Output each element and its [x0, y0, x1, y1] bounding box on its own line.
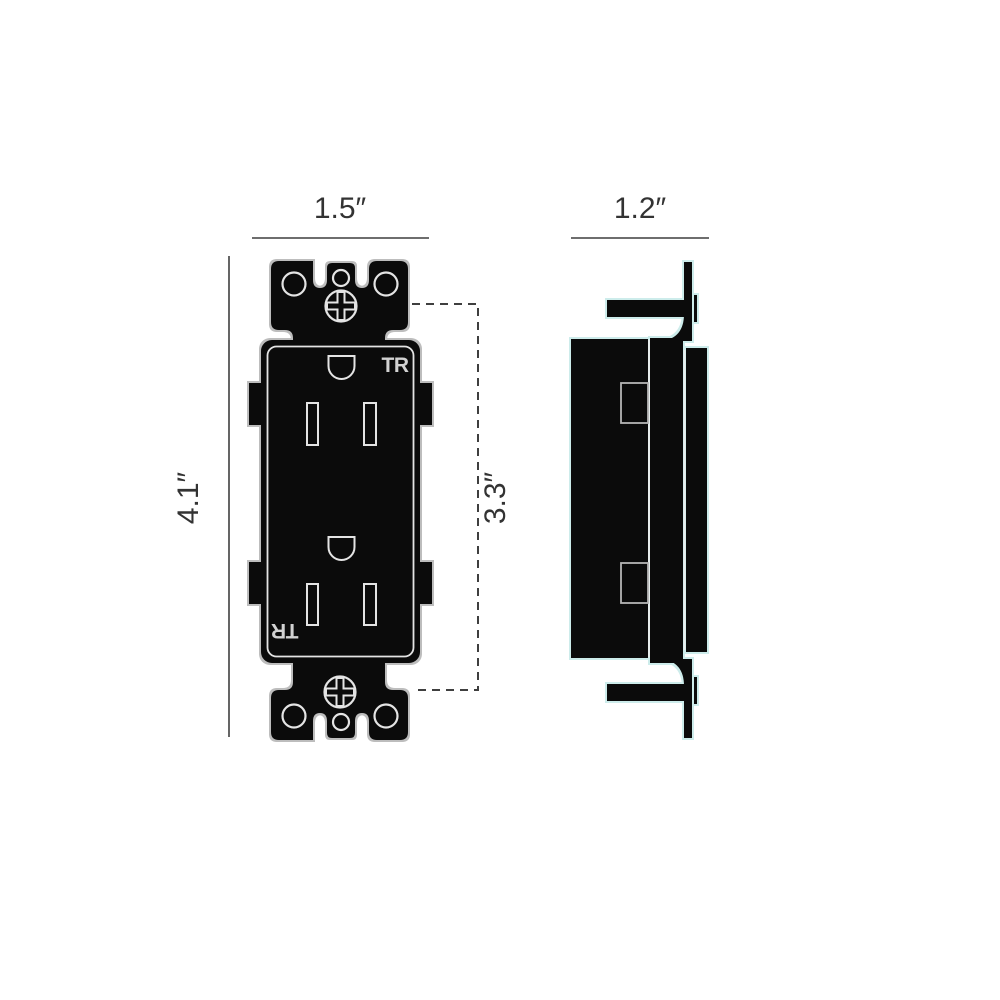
side-screw-bottom: [607, 684, 688, 701]
side-screw-tip-top: [694, 295, 697, 322]
side-tab-right-lower: [419, 562, 432, 604]
drawing-svg: 1.5″ 1.2″ 4.1″ 3.3″: [0, 0, 1000, 1000]
dimension-drawing-canvas: 1.5″ 1.2″ 4.1″ 3.3″: [0, 0, 1000, 1000]
side-view: [571, 262, 707, 738]
side-body-front-flange: [686, 348, 707, 652]
receptacle-face: [261, 340, 420, 663]
front-view: TR TR: [249, 261, 432, 740]
side-tab-left-upper: [249, 383, 262, 425]
side-body-middle: [650, 338, 683, 663]
height-dimension-label: 4.1″: [172, 471, 205, 524]
tr-marking-top: TR: [382, 354, 409, 377]
side-tab-lower: [621, 563, 648, 603]
side-tab-left-lower: [249, 562, 262, 604]
side-tab-upper: [621, 383, 648, 423]
opening-height-extension-lines: [412, 304, 478, 690]
opening-height-dimension-label: 3.3″: [479, 471, 512, 524]
mounting-screw-top: [326, 291, 357, 322]
mounting-screw-bottom: [325, 677, 356, 708]
side-tab-right-upper: [419, 383, 432, 425]
width-dimension-label: 1.5″: [314, 192, 367, 225]
side-screw-top: [607, 300, 688, 317]
tr-marking-bottom: TR: [271, 619, 298, 642]
side-screw-tip-bottom: [694, 677, 697, 704]
depth-dimension-label: 1.2″: [614, 192, 667, 225]
